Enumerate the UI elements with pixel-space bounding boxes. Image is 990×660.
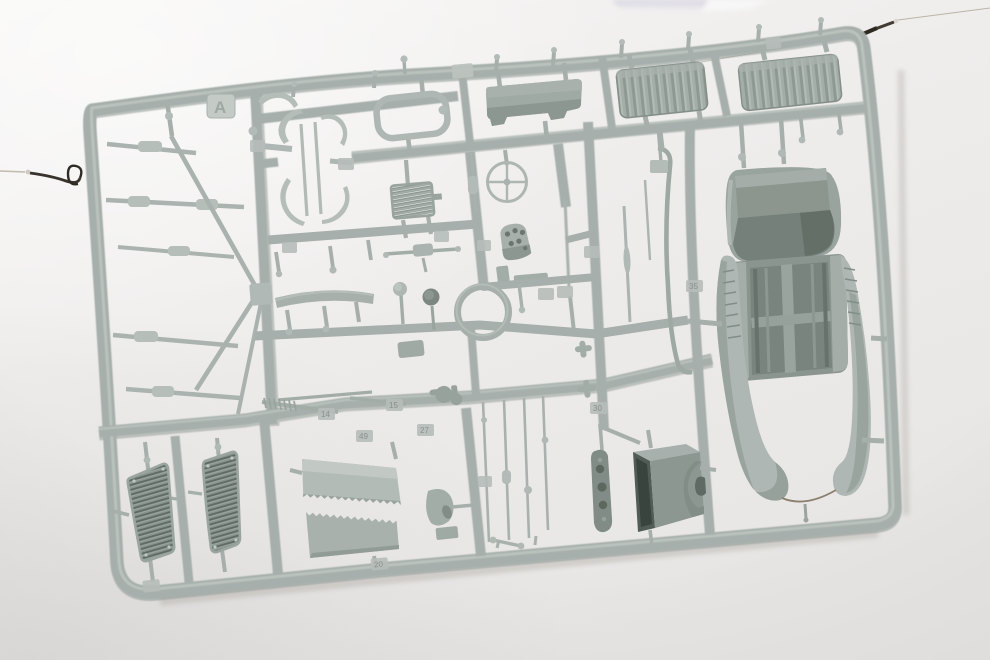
- svg-text:15: 15: [389, 401, 398, 410]
- svg-text:30: 30: [593, 404, 602, 413]
- svg-text:A: A: [214, 98, 226, 117]
- svg-text:14: 14: [321, 410, 330, 419]
- svg-text:20: 20: [374, 560, 384, 570]
- svg-text:27: 27: [420, 426, 429, 435]
- svg-text:35: 35: [689, 282, 698, 291]
- svg-text:49: 49: [359, 432, 368, 441]
